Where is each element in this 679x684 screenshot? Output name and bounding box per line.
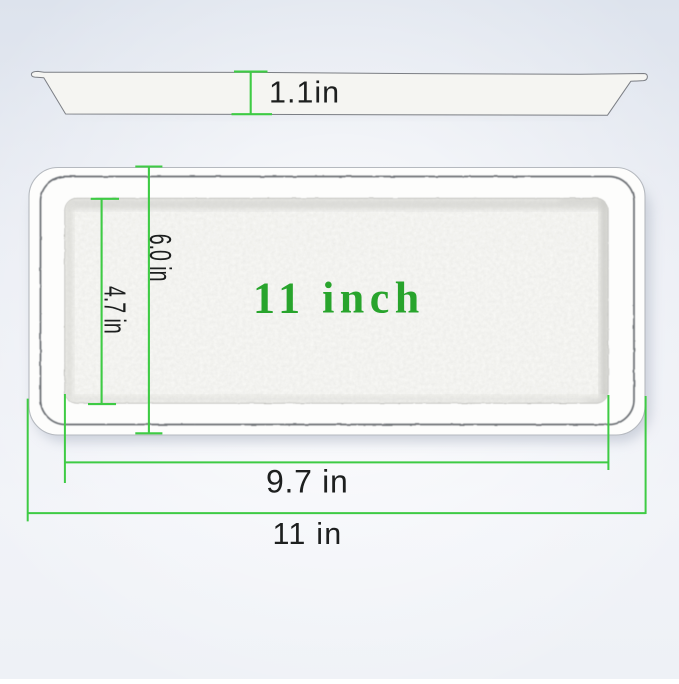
svg-text:11 in: 11 in [273, 517, 343, 551]
svg-text:4.7 in: 4.7 in [97, 286, 130, 334]
svg-text:1.1in: 1.1in [269, 76, 340, 110]
svg-text:9.7 in: 9.7 in [266, 463, 348, 499]
svg-text:6.0 in: 6.0 in [143, 234, 176, 282]
svg-text:11 inch: 11 inch [253, 274, 425, 323]
